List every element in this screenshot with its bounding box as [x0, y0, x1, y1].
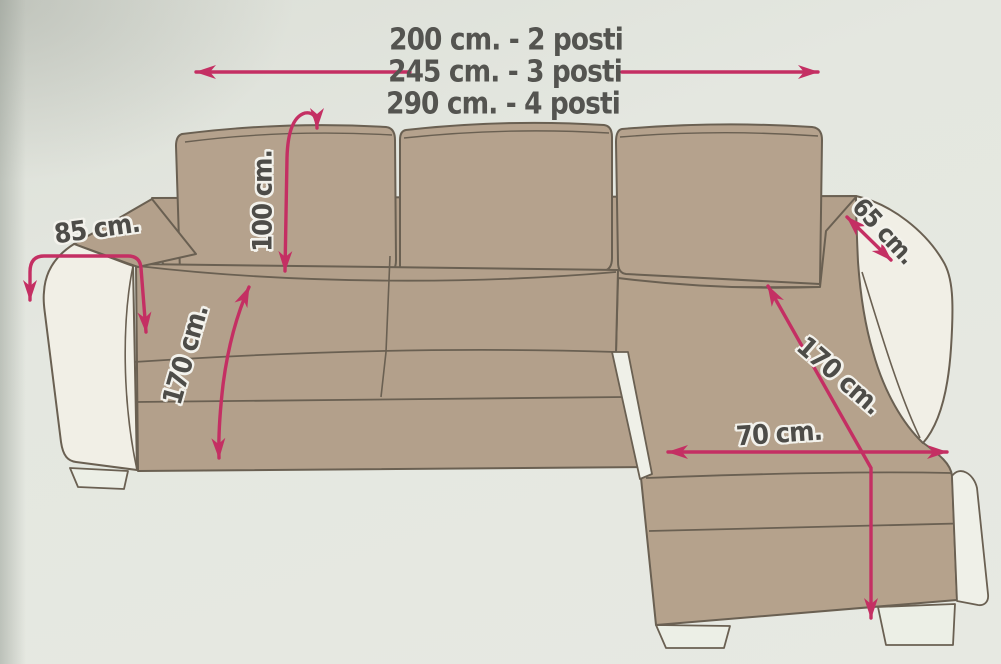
sofa-dimension-diagram: 200 cm. - 2 posti 245 cm. - 3 posti 290 …	[0, 0, 1001, 664]
back-cushion-right	[616, 124, 822, 284]
label-chaise-width-70: 70 cm.	[735, 416, 823, 453]
seat-body	[136, 264, 648, 471]
left-front-leg	[70, 468, 128, 489]
size-option-4-seats: 290 cm. - 4 posti	[386, 87, 620, 122]
size-option-2-seats: 200 cm. - 2 posti	[389, 23, 623, 58]
label-backrest-height-100: 100 cm.	[248, 150, 279, 252]
chaise-left-leg	[656, 625, 730, 648]
back-cushion-middle	[400, 123, 612, 277]
left-armrest-front	[44, 244, 137, 470]
chaise-side-panel	[952, 471, 988, 605]
size-option-3-seats: 245 cm. - 3 posti	[388, 55, 622, 90]
chaise-right-leg	[878, 604, 955, 645]
